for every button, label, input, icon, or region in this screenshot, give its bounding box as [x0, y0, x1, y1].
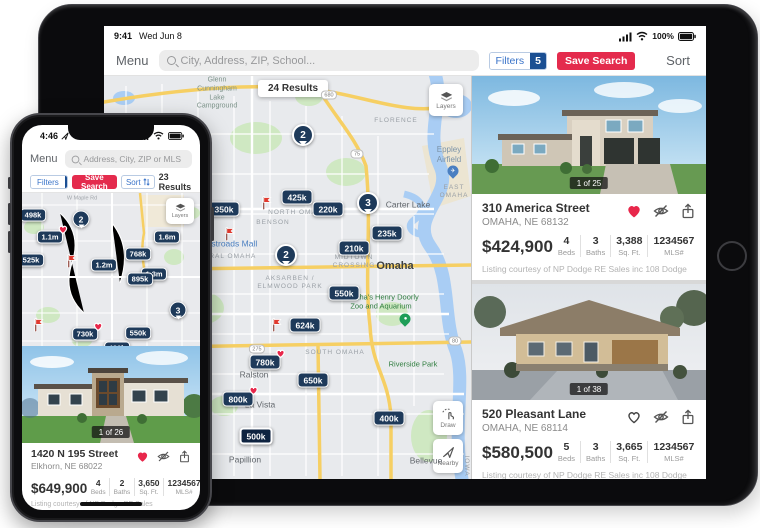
listing-city: Elkhorn, NE 68022	[31, 461, 118, 471]
route-shield: 80	[448, 337, 461, 346]
stat-mls#: 1234567MLS#	[647, 441, 699, 463]
price-pin[interactable]: 500k	[240, 428, 273, 445]
layers-icon	[440, 91, 453, 102]
cluster-pin[interactable]: 2	[292, 124, 314, 146]
filters-label: Filters	[31, 176, 65, 188]
share-icon[interactable]	[680, 203, 696, 219]
iphone-device: 4:46 Menu Address, City, ZIP or MLS	[10, 113, 212, 522]
flag-marker[interactable]	[261, 196, 274, 215]
listing-address: 1420 N 195 Street	[31, 448, 118, 460]
listing-courtesy: Listing courtesy of NP Dodge RE Sales in…	[482, 264, 696, 274]
listing-photo[interactable]: 1 of 38	[472, 284, 706, 400]
iphone-toolbar: Menu Address, City, ZIP or MLS	[22, 146, 200, 172]
ipad-clock: 9:41	[114, 31, 132, 41]
stat-sqft: 3,388Sq. Ft.	[610, 235, 647, 257]
price-pin[interactable]: 430k	[104, 342, 130, 347]
stat-beds: 4Beds	[87, 478, 109, 496]
location-arrow-icon	[61, 132, 69, 140]
sort-button[interactable]: Sort	[121, 175, 155, 189]
signal-icon	[619, 30, 632, 43]
iphone-map[interactable]: 23498k1.1m1.6m525k768k1.2m1.3m895k730k55…	[22, 193, 200, 346]
listing-address: 520 Pleasant Lane	[482, 407, 586, 421]
save-search-button[interactable]: Save Search	[557, 52, 635, 70]
photo-count-badge: 1 of 26	[92, 426, 130, 438]
listing-card[interactable]: 1 of 25 310 America Street OMAHA, NE 681…	[472, 76, 706, 280]
share-icon[interactable]	[178, 450, 191, 463]
sort-arrows-icon	[143, 178, 150, 186]
listing-card[interactable]: 1 of 38 520 Pleasant Lane OMAHA, NE 6811…	[472, 284, 706, 479]
search-icon	[167, 56, 176, 65]
listing-card[interactable]: 1420 N 195 Street Elkhorn, NE 68022 $649…	[22, 443, 200, 510]
cluster-pin[interactable]: 2	[73, 211, 90, 228]
listing-city: OMAHA, NE 68132	[482, 217, 590, 228]
listing-price: $580,500	[482, 443, 553, 463]
listing-price: $424,900	[482, 237, 553, 257]
price-pin[interactable]: 400k	[374, 411, 405, 426]
cluster-pin[interactable]: 2	[275, 244, 297, 266]
favorite-icon[interactable]	[136, 450, 149, 463]
heart-icon	[92, 321, 104, 334]
flag-marker[interactable]	[66, 254, 79, 273]
results-count: 24 Results	[258, 80, 328, 97]
menu-button[interactable]: Menu	[116, 53, 149, 68]
listing-stats: 4Beds3Baths3,388Sq. Ft.1234567MLS#	[553, 235, 699, 257]
ipad-status-bar: 9:41 Wed Jun 8 100%	[104, 26, 706, 46]
power-button	[211, 207, 214, 241]
price-pin[interactable]: 550k	[329, 286, 360, 301]
price-pin[interactable]: 780k	[250, 355, 281, 370]
listing-price: $649,900	[31, 481, 87, 496]
price-pin[interactable]: 525k	[22, 254, 44, 267]
ipad-toolbar: Menu City, Address, ZIP, School... Filte…	[104, 46, 706, 76]
ipad-home-button[interactable]	[717, 241, 747, 271]
favorite-icon[interactable]	[626, 203, 642, 219]
search-placeholder: Address, City, ZIP or MLS	[84, 154, 181, 164]
price-pin[interactable]: 624k	[290, 318, 321, 333]
favorite-icon[interactable]	[626, 409, 642, 425]
cluster-pin[interactable]: 3	[170, 302, 187, 319]
stat-baths: 3Baths	[580, 235, 610, 257]
stat-baths: 3Baths	[580, 441, 610, 463]
sort-label: Sort	[126, 178, 141, 187]
nearby-button[interactable]: Nearby	[433, 439, 463, 473]
battery-icon	[168, 132, 184, 140]
stat-sqft: 3,665Sq. Ft.	[610, 441, 647, 463]
listing-city: OMAHA, NE 68114	[482, 423, 586, 434]
photo-count-badge: 1 of 38	[570, 383, 608, 395]
filters-count-badge: 5	[530, 53, 546, 69]
search-placeholder: City, Address, ZIP, School...	[181, 55, 316, 67]
listing-stats: 5Beds3Baths3,665Sq. Ft.1234567MLS#	[553, 441, 699, 463]
notch	[68, 125, 154, 140]
share-icon[interactable]	[680, 409, 696, 425]
volume-up-button	[8, 203, 11, 225]
stat-beds: 4Beds	[553, 235, 580, 257]
mute-switch	[8, 177, 11, 189]
iphone-clock: 4:46	[40, 131, 58, 141]
search-input[interactable]: Address, City, ZIP or MLS	[65, 150, 192, 168]
draw-button[interactable]: Draw	[433, 401, 463, 435]
heart-icon	[247, 385, 259, 398]
price-pin[interactable]: 768k	[125, 248, 151, 261]
listing-photo[interactable]: 1 of 26	[22, 346, 200, 443]
menu-button[interactable]: Menu	[30, 153, 58, 165]
search-input[interactable]: City, Address, ZIP, School...	[159, 50, 479, 71]
layers-button[interactable]: Layers	[166, 198, 194, 224]
listing-stats: 4Beds2Baths3,650Sq. Ft.1234567MLS#	[87, 478, 200, 496]
flag-marker[interactable]	[224, 227, 237, 246]
battery-percent: 100%	[652, 31, 674, 41]
price-pin[interactable]: 220k	[313, 202, 344, 217]
draw-icon	[441, 407, 455, 421]
home-indicator[interactable]	[80, 502, 142, 506]
price-pin[interactable]: 730k	[72, 328, 98, 341]
listing-courtesy: Listing courtesy of NP Dodge RE Sales in…	[482, 470, 696, 479]
price-pin[interactable]: 550k	[125, 327, 151, 340]
stat-beds: 5Beds	[553, 441, 580, 463]
iphone-filter-row: Filters 5 Save Search Sort 23 Results	[22, 172, 200, 193]
route-shield: 75	[350, 150, 363, 159]
price-pin[interactable]: 235k	[372, 226, 403, 241]
wifi-icon	[636, 31, 648, 41]
photo-count-badge: 1 of 25	[570, 177, 608, 189]
price-pin[interactable]: 800k	[223, 392, 254, 407]
filters-button[interactable]: Filters 5	[30, 175, 68, 189]
stage: 9:41 Wed Jun 8 100% Menu City, Address, …	[0, 0, 760, 528]
draw-label: Draw	[440, 422, 455, 429]
cluster-pin[interactable]: 3	[357, 192, 379, 214]
price-pin[interactable]: 1.2m	[91, 259, 117, 272]
hide-icon[interactable]	[653, 409, 669, 425]
price-pin[interactable]: 425k	[282, 190, 313, 205]
wifi-icon	[153, 131, 164, 140]
stat-baths: 2Baths	[109, 478, 134, 496]
listing-address: 310 America Street	[482, 201, 590, 215]
flag-marker[interactable]	[271, 318, 284, 337]
price-pin[interactable]: 1.1m	[37, 231, 63, 244]
price-pin[interactable]: 895k	[127, 273, 153, 286]
nearby-icon	[442, 446, 455, 459]
price-pin[interactable]: 1.6m	[154, 231, 180, 244]
results-count: 23 Results	[159, 172, 192, 192]
iphone-screen: 4:46 Menu Address, City, ZIP or MLS	[22, 125, 200, 510]
layers-label: Layers	[172, 213, 189, 219]
hide-icon[interactable]	[157, 450, 170, 463]
heart-icon	[57, 224, 69, 237]
listing-photo[interactable]: 1 of 25	[472, 76, 706, 194]
price-pin[interactable]: 210k	[339, 241, 370, 256]
stat-sqft: 3,650Sq. Ft.	[134, 478, 163, 496]
layers-button[interactable]: Layers	[429, 84, 463, 116]
filters-button[interactable]: Filters 5	[489, 52, 547, 70]
hide-icon[interactable]	[653, 203, 669, 219]
flag-marker[interactable]	[33, 318, 46, 337]
nearby-label: Nearby	[438, 460, 459, 467]
search-icon	[71, 155, 79, 163]
sort-button[interactable]: Sort	[666, 53, 694, 68]
ipad-date: Wed Jun 8	[139, 31, 182, 41]
route-shield: 680	[321, 91, 337, 100]
price-pin[interactable]: 498k	[22, 209, 46, 222]
layers-icon	[175, 203, 186, 212]
save-search-button[interactable]: Save Search	[72, 175, 117, 189]
stat-mls#: 1234567MLS#	[163, 478, 200, 496]
heart-icon	[274, 348, 286, 361]
route-shield: 275	[249, 345, 265, 354]
price-pin[interactable]: 650k	[298, 373, 329, 388]
layers-label: Layers	[436, 103, 456, 110]
battery-icon	[678, 32, 696, 41]
volume-down-button	[8, 231, 11, 253]
filters-label: Filters	[490, 53, 531, 69]
listing-panel: 1 of 25 310 America Street OMAHA, NE 681…	[471, 76, 706, 479]
stat-mls#: 1234567MLS#	[647, 235, 699, 257]
filters-count-badge: 5	[65, 176, 68, 188]
